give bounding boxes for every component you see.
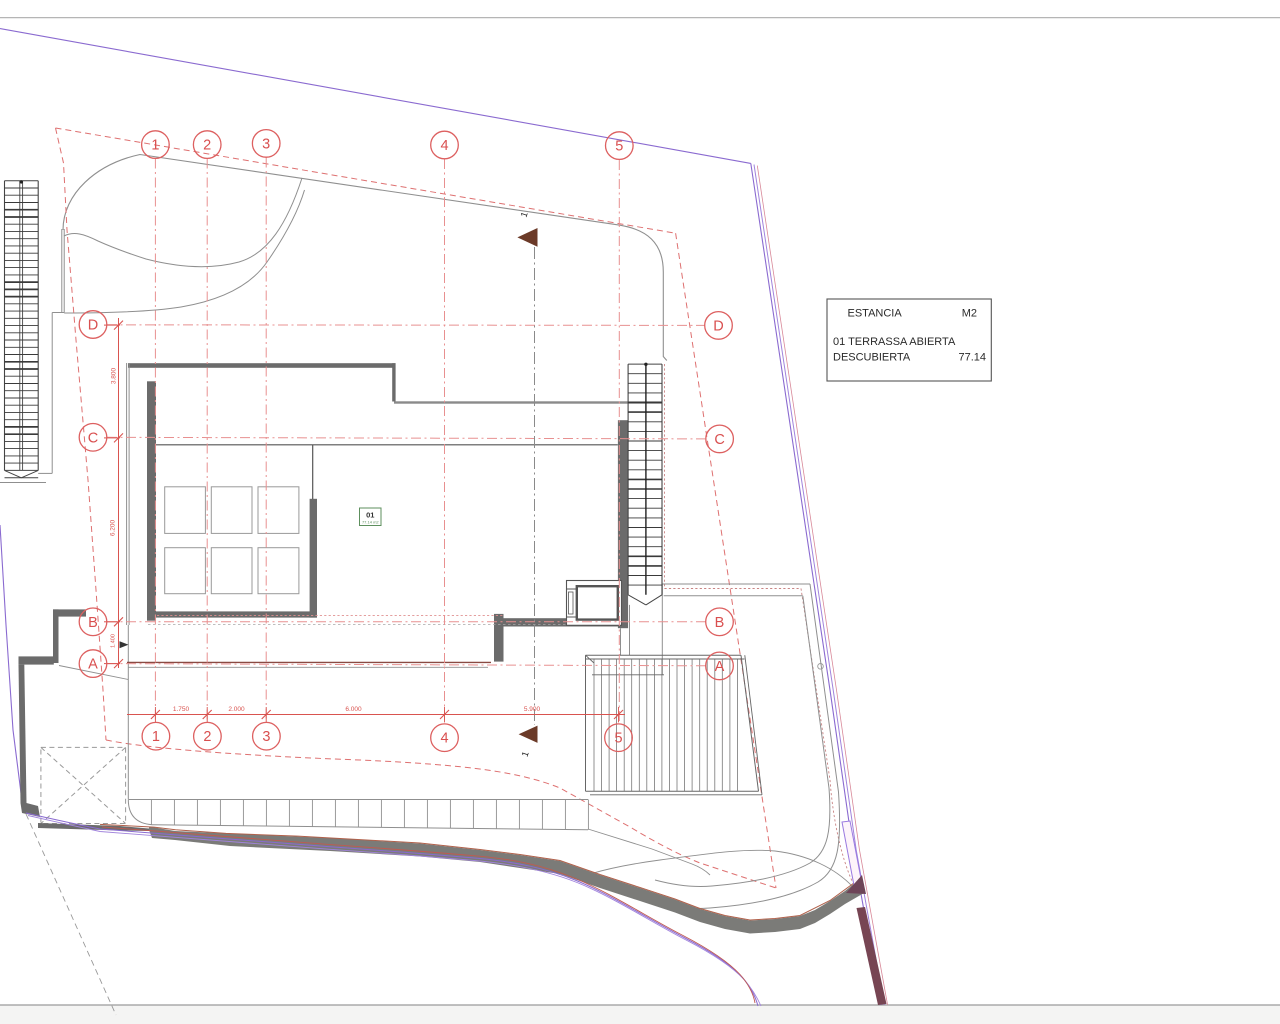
svg-text:3: 3 (262, 729, 270, 745)
svg-text:C: C (88, 430, 98, 446)
svg-text:3.800: 3.800 (111, 367, 118, 384)
svg-text:2.000: 2.000 (228, 706, 245, 713)
svg-text:C: C (714, 432, 724, 448)
svg-text:1.750: 1.750 (173, 706, 190, 713)
svg-text:B: B (715, 615, 725, 631)
svg-text:1: 1 (152, 729, 160, 745)
svg-text:D: D (713, 318, 723, 334)
svg-text:5.900: 5.900 (524, 706, 541, 713)
svg-text:2: 2 (203, 138, 211, 154)
svg-text:A: A (88, 657, 98, 673)
svg-text:1.400: 1.400 (111, 634, 117, 648)
svg-text:4: 4 (440, 731, 448, 747)
svg-text:3: 3 (262, 136, 270, 152)
svg-text:B: B (88, 615, 98, 631)
svg-text:5: 5 (614, 731, 622, 747)
svg-text:2: 2 (203, 729, 211, 745)
svg-text:6.000: 6.000 (345, 706, 362, 713)
svg-text:1: 1 (151, 138, 159, 154)
svg-text:01 TERRASSA ABIERTA: 01 TERRASSA ABIERTA (833, 336, 956, 348)
svg-text:77.14: 77.14 (958, 352, 986, 364)
svg-text:ESTANCIA: ESTANCIA (848, 308, 903, 320)
svg-text:M2: M2 (962, 308, 977, 320)
svg-text:77.14 m2: 77.14 m2 (362, 520, 379, 525)
svg-text:5: 5 (615, 139, 623, 155)
svg-text:01: 01 (366, 511, 374, 520)
svg-text:A: A (715, 659, 725, 675)
svg-text:D: D (88, 318, 98, 334)
svg-text:DESCUBIERTA: DESCUBIERTA (833, 352, 911, 364)
svg-text:6.200: 6.200 (110, 519, 117, 536)
svg-text:4: 4 (440, 138, 448, 154)
